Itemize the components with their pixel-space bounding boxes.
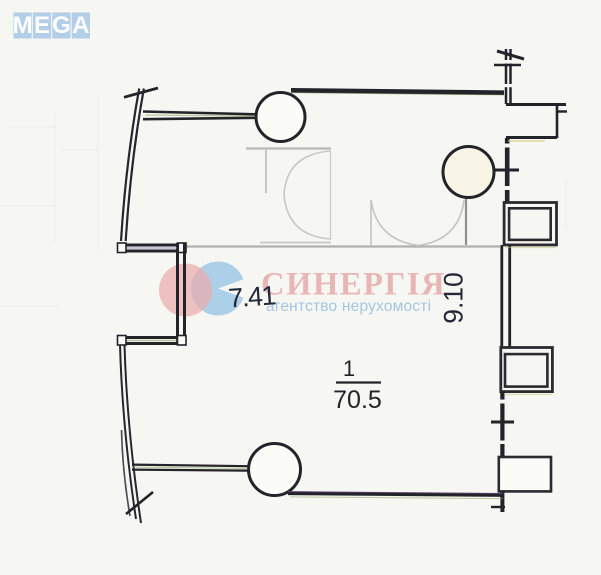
svg-text:9.10: 9.10 <box>439 272 469 324</box>
svg-text:агентство нерухомості: агентство нерухомості <box>266 298 431 315</box>
svg-text:A: A <box>72 12 89 39</box>
svg-text:M: M <box>13 12 33 39</box>
svg-text:70.5: 70.5 <box>333 386 382 414</box>
svg-text:G: G <box>52 12 71 39</box>
svg-text:E: E <box>34 12 50 39</box>
svg-text:7.41: 7.41 <box>227 280 276 313</box>
svg-text:1: 1 <box>343 356 355 381</box>
